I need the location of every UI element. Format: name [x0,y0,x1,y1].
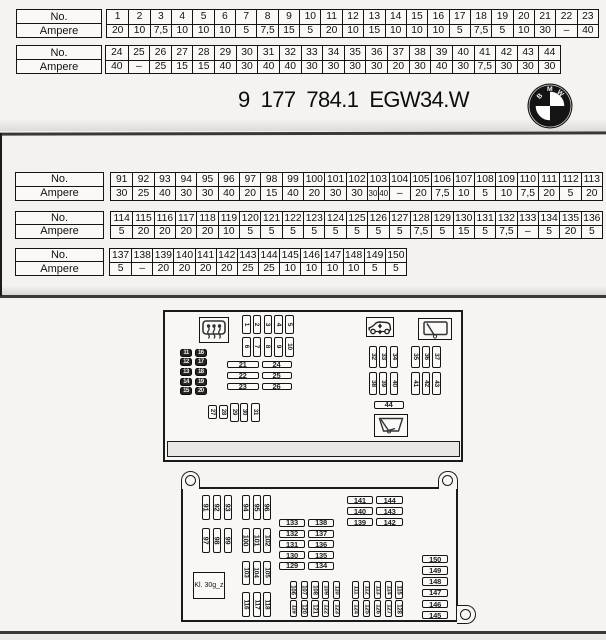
svg-text:M: M [547,86,553,93]
